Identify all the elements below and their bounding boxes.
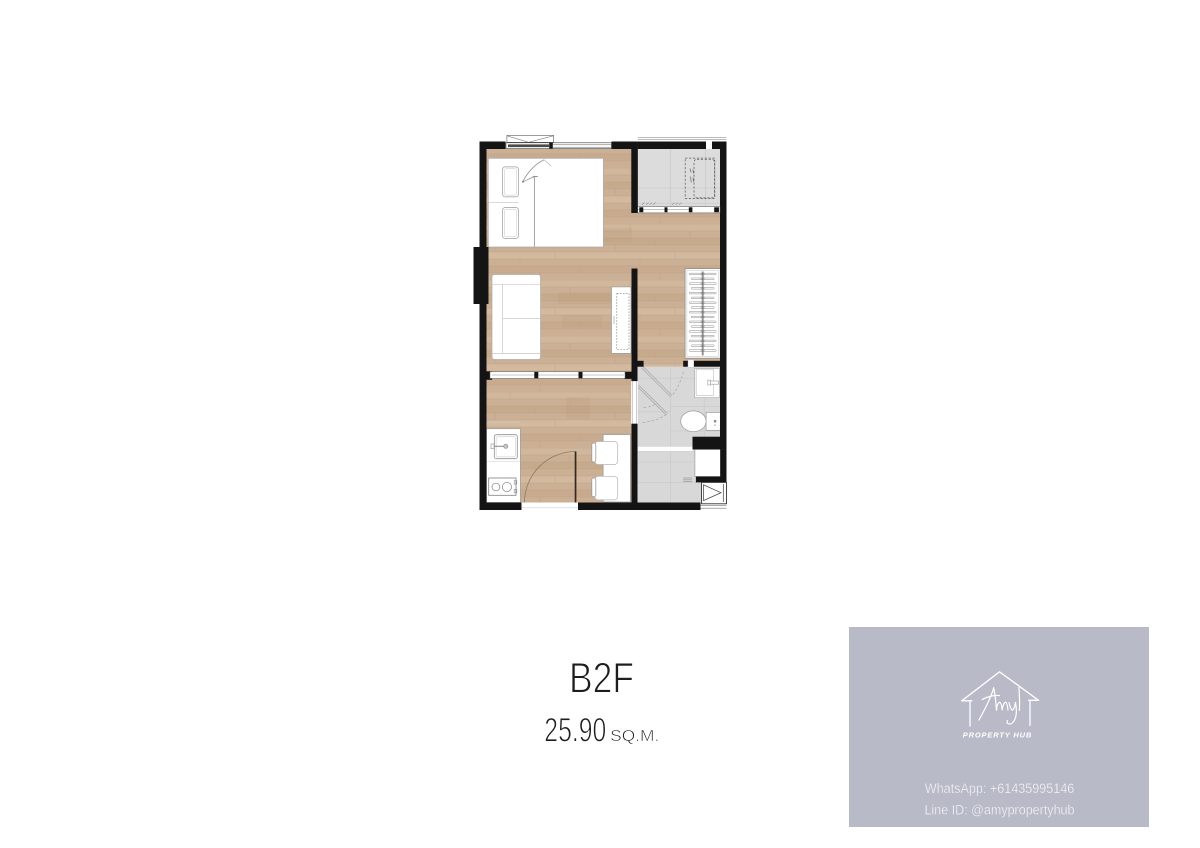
svg-text:Line ID: @amypropertyhub: Line ID: @amypropertyhub xyxy=(925,803,1075,818)
svg-text:B2F: B2F xyxy=(569,654,634,702)
svg-text:25.90: 25.90 xyxy=(544,711,606,749)
svg-text:SQ.M.: SQ.M. xyxy=(610,728,659,745)
svg-text:PROPERTY HUB: PROPERTY HUB xyxy=(963,730,1033,739)
svg-text:WhatsApp: +61435995146: WhatsApp: +61435995146 xyxy=(925,781,1075,796)
